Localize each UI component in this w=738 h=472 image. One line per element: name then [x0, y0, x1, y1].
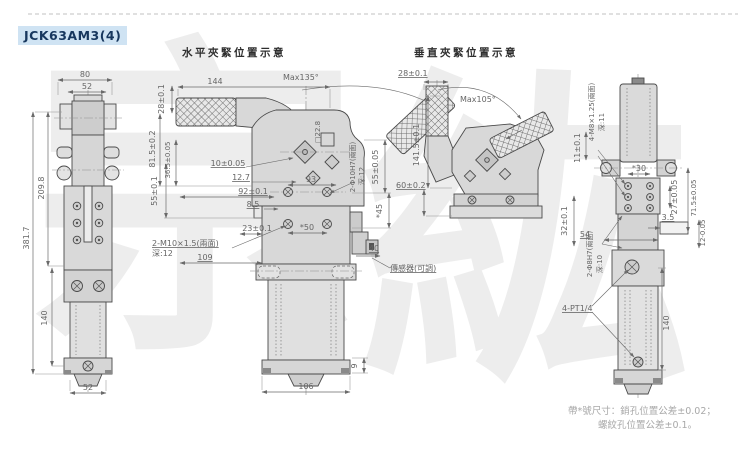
clamp-arm-vertical: [426, 86, 448, 136]
dim-27-label: 27±0.05: [670, 180, 679, 215]
dim-381-label: 381.7: [22, 227, 31, 250]
dim-93-label: 93: [306, 175, 316, 184]
technical-drawing: 80 52 381.7 209.8 140 52 水平夾緊位置示意: [0, 0, 738, 472]
dim-28v-label: 28±0.1: [398, 69, 428, 78]
dim-106-label: 106: [298, 382, 313, 391]
sensor-label: 傳感器(可調): [390, 263, 436, 273]
dim-55l-label: 55±0.1: [150, 176, 159, 206]
front-view: 80 52 381.7 209.8 140 52: [22, 70, 124, 393]
dim-715-label: 71.5±0.05: [690, 179, 698, 216]
dim-12-label: 12-0.05: [699, 219, 707, 246]
pin-phi10-depth: 深:12: [357, 167, 366, 185]
dim-square-label: □22.8: [314, 121, 322, 143]
dim-52-bottom-label: 52: [83, 383, 93, 392]
dim-140-side-label: 140: [662, 315, 671, 330]
dim-815-label: 81.5±0.2: [148, 130, 157, 167]
dim-52-top-label: 52: [82, 82, 92, 91]
thread-m8-label: 4-M8×1.25(兩面): [588, 83, 596, 142]
dim-45-label: *45: [375, 204, 384, 218]
dim-35-label: 3.5: [662, 213, 675, 222]
dim-1415-label: 141.5±0.1: [412, 124, 421, 166]
clamp-arm-horizontal: [176, 98, 236, 126]
pin-phi8-depth: 深:10: [595, 255, 604, 273]
side-view: 4-M8×1.25(兩面) 深:11 11±0.1 *30 27±0.05 71…: [560, 74, 707, 398]
tolerance-note: 帶*號尺寸：銷孔位置公差±0.02； 螺紋孔位置公差±0.1。: [568, 405, 716, 431]
thread-m10-label: 2-M10×1.5(兩面): [152, 239, 219, 248]
dim-127-label: 12.7: [232, 173, 250, 182]
dim-30-label: *30: [632, 164, 646, 173]
dim-144-label: 144: [207, 77, 222, 86]
vertical-clamp-view: 垂直夾緊位置示意 28±0.1 Max105°: [396, 46, 554, 218]
dim-92-label: 92±0.1: [238, 187, 268, 196]
horizontal-view-header: 水平夾緊位置示意: [181, 46, 286, 59]
dim-140-front-label: 140: [40, 310, 49, 325]
dim-23-label: 23±0.1: [242, 224, 272, 233]
dim-32-label: 32±0.1: [560, 206, 569, 236]
thread-m10-depth: 深:12: [152, 249, 173, 258]
dim-max105-label: Max105°: [460, 95, 496, 104]
vertical-view-header: 垂直夾緊位置示意: [414, 46, 518, 59]
dim-10-label: 10±0.05: [211, 159, 246, 168]
dim-365-label: 36.5±0.05: [164, 141, 172, 178]
note-line-1: 帶*號尺寸：銷孔位置公差±0.02；: [568, 405, 716, 417]
dim-80-label: 80: [80, 70, 90, 79]
dim-9-label: 9: [350, 363, 359, 368]
dim-109-label: 109: [197, 253, 212, 262]
dim-40-label: 40: [369, 244, 379, 253]
port-pt-label: 4-PT1/4: [562, 304, 593, 313]
pin-phi10-label: 2-Φ10H7(兩面): [349, 141, 357, 192]
dim-60-label: 60±0.2: [396, 181, 426, 190]
thread-m8-depth: 深:11: [597, 113, 606, 131]
dim-209-label: 209.8: [37, 177, 46, 200]
dim-max135-label: Max135°: [283, 73, 319, 82]
dim-28h-label: 28±0.1: [157, 84, 166, 114]
horizontal-clamp-view: 水平夾緊位置示意 Max135°: [148, 46, 456, 396]
note-line-2: 螺紋孔位置公差±0.1。: [598, 419, 697, 431]
pin-phi8-label: 2-Φ8H7(兩面): [586, 231, 594, 277]
dim-55r-label: 55±0.05: [371, 150, 380, 185]
dim-50-label: *50: [300, 223, 314, 232]
drawing-page: 宗 紘 JCK63AM3(4): [0, 0, 738, 472]
dim-11-label: 11±0.1: [573, 133, 582, 163]
dim-85-label: 8.5: [247, 200, 260, 209]
model-title: JCK63AM3(4): [18, 26, 127, 45]
